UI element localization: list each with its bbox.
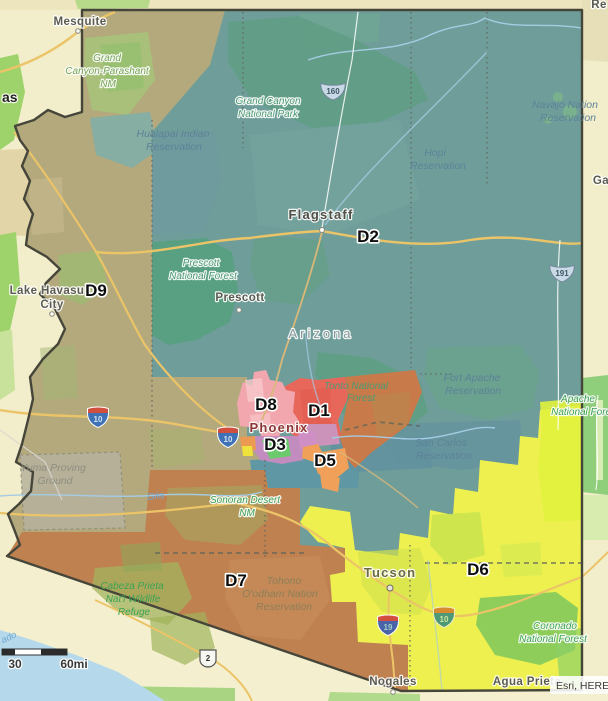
map-canvas[interactable]: 10 10 10 19 160 191 — [0, 0, 608, 701]
grand-canyon-np-label-line2: National Park — [238, 109, 299, 120]
district-label-d2: D2 — [357, 227, 379, 246]
district-label-d5: D5 — [314, 451, 336, 470]
cabeza-prieta-label-line2: Nat'l Wildlife — [106, 594, 161, 605]
esri-attribution-text[interactable]: Esri, HERE — [556, 680, 608, 692]
tonto-nf-label-line1: Tonto National — [324, 381, 389, 392]
san-carlos-label-line2: Reservation — [416, 450, 472, 462]
sonoran-desert-label-line1: Sonoran Desert — [210, 495, 281, 506]
parashant-label-line3: NM — [100, 79, 116, 90]
scale-mid-label: 30 — [8, 657, 22, 671]
apache-nf-label-line2: National Forest — [551, 407, 608, 418]
svg-text:10: 10 — [94, 415, 103, 424]
scale-end-label: 60mi — [60, 657, 87, 671]
parashant-label-line1: Grand — [93, 53, 121, 64]
svg-text:191: 191 — [555, 269, 569, 278]
district-label-d6: D6 — [467, 560, 489, 579]
svg-text:19: 19 — [384, 623, 393, 632]
mesquite-label: Mesquite — [53, 16, 106, 28]
hopi-label-line1: Hopi — [424, 147, 446, 159]
tucson-dot — [387, 585, 393, 591]
svg-text:10: 10 — [440, 615, 449, 624]
gila-river-label: Gila — [147, 490, 165, 503]
svg-text:10: 10 — [224, 435, 233, 444]
tohono-label-line3: Reservation — [256, 601, 312, 613]
parashant-label-line2: Canyon-Parashant — [65, 66, 150, 77]
reservation-label-fragment: Re — [591, 0, 607, 11]
grand-canyon-np-label-line1: Grand Canyon — [235, 96, 300, 107]
yuma-proving-label-line1: Yuma Proving — [20, 462, 86, 474]
cabeza-prieta-label-line3: Refuge — [118, 607, 151, 618]
sonoran-desert-label-line2: NM — [239, 508, 255, 519]
arizona-state-label: Arizona — [288, 326, 353, 341]
prescott-nf-label-line2: National Forest — [169, 271, 238, 282]
map-viewport[interactable]: 10 10 10 19 160 191 — [0, 0, 608, 701]
lake-havasu-label-line1: Lake Havasu — [10, 285, 85, 297]
district-label-d9: D9 — [85, 281, 107, 300]
cabeza-prieta-label-line1: Cabeza Prieta — [100, 581, 164, 592]
tonto-nf-label-line2: Forest — [347, 393, 377, 404]
yuma-proving-label-line2: Ground — [37, 475, 73, 487]
hopi-label-line2: Reservation — [410, 160, 466, 172]
prescott-nf-label-line1: Prescott — [183, 258, 221, 269]
svg-text:2: 2 — [206, 654, 211, 663]
lake-havasu-label-line2: City — [40, 299, 64, 311]
lake-havasu-dot — [50, 312, 55, 317]
phoenix-label: Phoenix — [250, 420, 309, 435]
flagstaff-label: Flagstaff — [289, 207, 354, 222]
attribution[interactable]: Esri, HERE — [550, 676, 608, 694]
nogales-dot — [391, 690, 396, 695]
fort-apache-label-line2: Reservation — [445, 385, 501, 397]
hualapai-label-line1: Hualapai Indian — [137, 128, 210, 140]
nogales-label: Nogales — [369, 676, 417, 688]
tohono-label-line2: O'odham Nation — [242, 588, 318, 600]
prescott-dot — [237, 308, 242, 313]
san-carlos-label-line1: San Carlos — [415, 437, 468, 449]
coronado-nf-label-line1: Coronado — [533, 621, 577, 632]
district-label-d8: D8 — [255, 395, 277, 414]
tohono-label-line1: Tohono — [267, 575, 302, 587]
navajo-label-line2: Reservation — [540, 112, 596, 124]
district-label-d1: D1 — [308, 401, 330, 420]
svg-text:160: 160 — [326, 87, 340, 96]
tucson-label: Tucson — [364, 565, 416, 580]
district-label-d7: D7 — [225, 571, 247, 590]
hualapai-label-line2: Reservation — [146, 141, 202, 153]
apache-nf-label-line1: Apache — [560, 394, 595, 405]
district-label-d3: D3 — [264, 435, 286, 454]
gallup-label-fragment: Ga — [593, 175, 608, 187]
fort-apache-label-line1: Fort Apache — [444, 372, 501, 384]
coronado-nf-label-line2: National Forest — [519, 634, 588, 645]
las-vegas-label-fragment: as — [2, 89, 18, 105]
mx2-shield: 2 — [200, 650, 216, 667]
navajo-label-line1: Navajo Nation — [532, 99, 598, 111]
flagstaff-dot — [320, 228, 325, 233]
prescott-label: Prescott — [215, 292, 264, 304]
mesquite-dot — [76, 29, 81, 34]
